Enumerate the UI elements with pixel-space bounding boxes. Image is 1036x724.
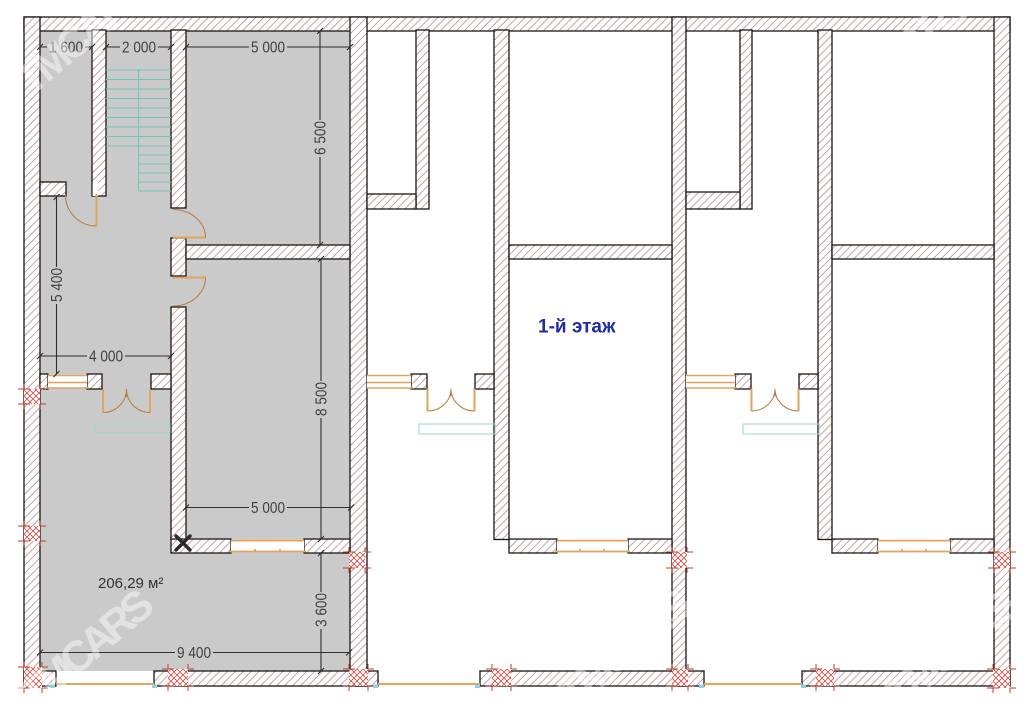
svg-text:1-й этаж: 1-й этаж bbox=[538, 317, 616, 338]
svg-text:5 000: 5 000 bbox=[251, 500, 285, 517]
svg-text:2 000: 2 000 bbox=[122, 40, 156, 57]
svg-text:5 000: 5 000 bbox=[251, 40, 285, 57]
svg-text:9 400: 9 400 bbox=[177, 645, 211, 662]
svg-text:4 000: 4 000 bbox=[89, 349, 123, 366]
svg-text:8 500: 8 500 bbox=[314, 382, 331, 416]
svg-text:5 400: 5 400 bbox=[49, 268, 66, 302]
svg-text:3 600: 3 600 bbox=[314, 593, 331, 627]
svg-text:6 500: 6 500 bbox=[313, 121, 330, 155]
